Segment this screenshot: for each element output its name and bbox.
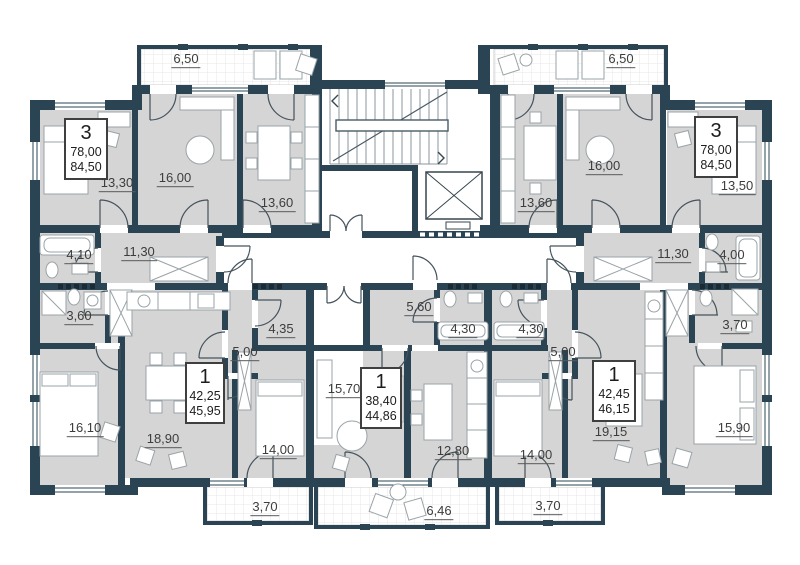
apartment-living-area: 78,00 (68, 145, 104, 160)
room-area-label: 4,10 (64, 248, 93, 264)
room-area-label: 4,30 (448, 322, 477, 338)
room-area-label: 13,50 (719, 179, 756, 195)
room-area-label: 5,00 (230, 345, 259, 361)
room-area-label: 16,00 (157, 171, 194, 187)
apartment-total-area: 46,15 (596, 402, 632, 417)
room-area-label: 4,30 (516, 322, 545, 338)
apartment-rooms-count: 3 (698, 120, 734, 143)
floor-plan: 3 78,00 84,50 3 78,00 84,50 1 42,25 45,9… (0, 0, 800, 565)
apartment-living-area: 42,25 (189, 389, 221, 404)
room-area-label: 14,00 (518, 448, 555, 464)
apartment-living-area: 78,00 (698, 143, 734, 158)
room-area-label: 4,35 (266, 322, 295, 338)
room-area-label: 13,60 (259, 196, 296, 212)
room-area-label: 15,90 (716, 421, 753, 437)
apartment-total-area: 45,95 (189, 404, 221, 419)
room-area-label: 16,10 (67, 421, 104, 437)
room-area-label: 14,00 (260, 443, 297, 459)
floor-plan-svg (0, 0, 800, 565)
apartment-info-3-left: 3 78,00 84,50 (64, 118, 108, 180)
apartment-living-area: 38,40 (364, 394, 398, 409)
apartment-rooms-count: 1 (596, 364, 632, 387)
apartment-info-1-left: 1 42,25 45,95 (185, 362, 225, 424)
room-area-label: 13,60 (518, 196, 555, 212)
room-area-label: 3,70 (720, 318, 749, 334)
room-area-label: 18,90 (145, 432, 182, 448)
room-area-label: 12,80 (435, 444, 472, 460)
apartment-total-area: 84,50 (68, 160, 104, 175)
room-area-label: 6,50 (606, 52, 635, 68)
apartment-rooms-count: 1 (364, 371, 398, 394)
room-area-label: 3,60 (64, 309, 93, 325)
room-area-label: 6,46 (424, 504, 453, 520)
apartment-rooms-count: 1 (189, 366, 221, 389)
apartment-living-area: 42,45 (596, 387, 632, 402)
room-area-label: 5,60 (404, 300, 433, 316)
room-area-label: 6,50 (171, 52, 200, 68)
room-area-label: 11,30 (655, 247, 691, 263)
apartment-info-1-middle: 1 38,40 44,86 (360, 367, 402, 429)
apartment-total-area: 84,50 (698, 158, 734, 173)
room-area-label: 11,30 (121, 245, 157, 261)
room-area-label: 3,70 (250, 500, 279, 516)
room-area-label: 4,00 (717, 248, 746, 264)
apartment-info-1-right: 1 42,45 46,15 (592, 360, 636, 422)
apartment-rooms-count: 3 (68, 122, 104, 145)
room-area-label: 16,00 (586, 159, 623, 175)
apartment-info-3-right: 3 78,00 84,50 (694, 116, 738, 178)
room-area-label: 3,70 (533, 499, 562, 515)
room-area-label: 19,15 (593, 425, 630, 441)
room-area-label: 15,70 (326, 382, 363, 398)
room-area-label: 5,00 (548, 345, 577, 361)
apartment-total-area: 44,86 (364, 409, 398, 424)
